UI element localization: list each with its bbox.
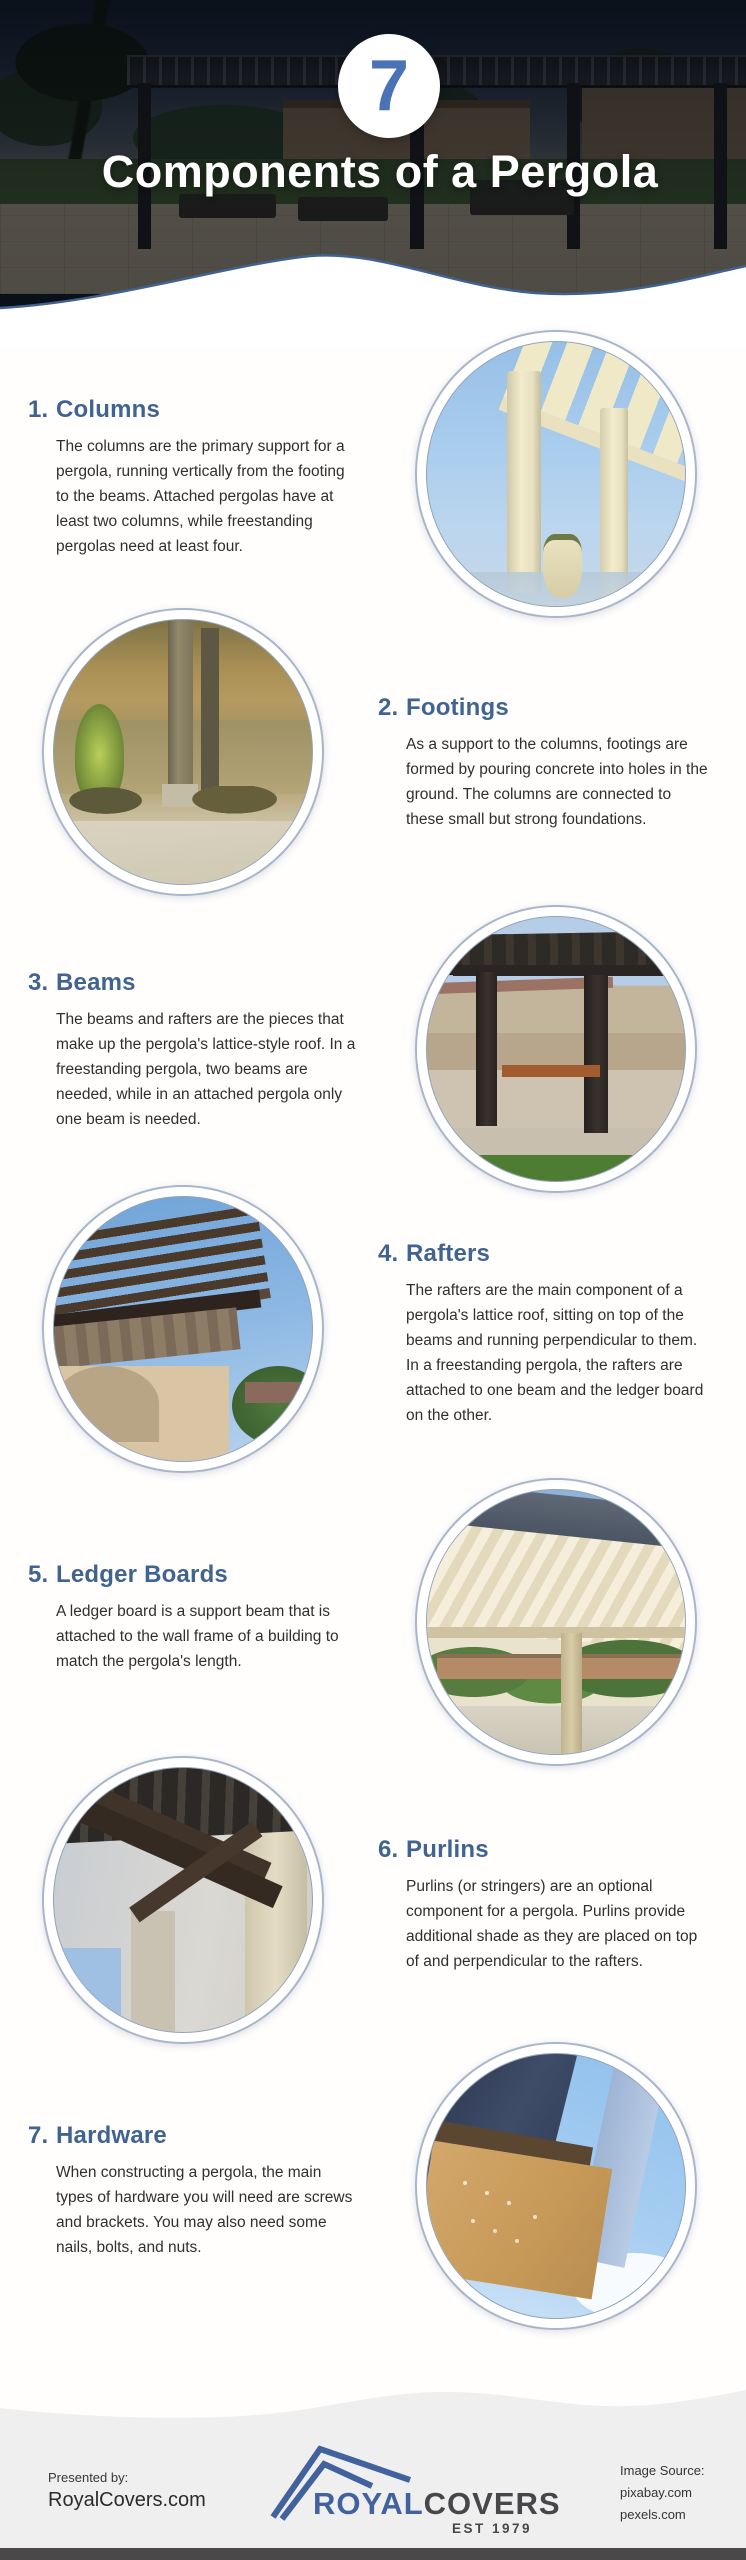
section-body: The beams and rafters are the pieces tha… xyxy=(56,1007,358,1132)
dark-pergola-picnic-table-photo xyxy=(426,916,686,1182)
bottom-bar xyxy=(0,2548,746,2560)
image-source-pixabay: pixabay.com xyxy=(620,2482,705,2504)
section-number: 2. xyxy=(378,694,406,722)
footer-wave-shape xyxy=(0,2380,746,2426)
presented-by-site[interactable]: RoyalCovers.com xyxy=(48,2489,206,2512)
pergola-lattice-roof-photo xyxy=(53,1196,313,1462)
art-layer xyxy=(600,408,628,598)
art-layer xyxy=(232,1366,313,1445)
section-body: The rafters are the main component of a … xyxy=(406,1278,708,1428)
footings-photo-circle xyxy=(42,608,324,896)
section-number: 4. xyxy=(378,1240,406,1268)
number-badge: 7 xyxy=(338,34,440,138)
art-layer xyxy=(463,2181,467,2185)
art-layer xyxy=(427,1627,685,1638)
hero-banner: 7 Components of a Pergola xyxy=(0,0,746,346)
image-source-block: Image Source: pixabay.com pexels.com xyxy=(620,2460,705,2526)
white-classical-columns-photo xyxy=(426,341,686,607)
section-title: Beams xyxy=(56,969,364,997)
art-layer xyxy=(584,975,607,1133)
section-title: Footings xyxy=(406,694,718,722)
rafters-photo-circle xyxy=(42,1185,324,1473)
royalcovers-logo-text: ROYALCOVERS xyxy=(313,2488,561,2519)
art-layer xyxy=(245,1382,312,1403)
art-layer xyxy=(131,1911,175,2032)
art-layer xyxy=(54,821,312,884)
art-layer xyxy=(201,628,219,794)
ledger-boards-photo-circle xyxy=(415,1478,697,1766)
pergola-corner-hardware-photo xyxy=(426,2053,686,2319)
section-body: As a support to the columns, footings ar… xyxy=(406,732,708,832)
section-body: The columns are the primary support for … xyxy=(56,434,358,559)
art-layer xyxy=(54,1366,159,1442)
pergola-infographic: 7 Components of a Pergola 1. Columns The… xyxy=(0,0,746,2560)
presented-by-label: Presented by: xyxy=(48,2470,206,2485)
art-layer xyxy=(502,1065,600,1077)
section-number: 3. xyxy=(28,969,56,997)
art-layer xyxy=(427,1706,685,1754)
art-layer xyxy=(561,1633,582,1754)
columns-photo-circle xyxy=(415,330,697,618)
art-layer xyxy=(168,620,194,794)
patio-cover-underside-photo xyxy=(426,1489,686,1755)
art-layer xyxy=(54,1442,100,1450)
section-body: When constructing a pergola, the main ty… xyxy=(56,2160,358,2260)
presented-by-block: Presented by: RoyalCovers.com xyxy=(48,2470,206,2512)
art-layer xyxy=(507,371,541,593)
logo-est-1979: EST 1979 xyxy=(452,2521,532,2536)
hardware-photo-circle xyxy=(415,2042,697,2330)
section-number: 1. xyxy=(28,396,56,424)
art-layer xyxy=(54,1366,229,1461)
section-title: Hardware xyxy=(56,2122,364,2150)
image-source-label: Image Source: xyxy=(620,2460,705,2482)
logo-royal: ROYAL xyxy=(313,2486,424,2521)
hero-wave-shape xyxy=(0,240,746,346)
section-number: 7. xyxy=(28,2122,56,2150)
image-source-pexels: pexels.com xyxy=(620,2504,705,2526)
section-number: 6. xyxy=(378,1836,406,1864)
art-layer xyxy=(54,786,312,815)
section-body: Purlins (or stringers) are an optional c… xyxy=(406,1874,708,1974)
beams-photo-circle xyxy=(415,905,697,1193)
art-layer xyxy=(427,1155,685,1181)
art-layer xyxy=(543,534,582,598)
section-title: Ledger Boards xyxy=(56,1561,364,1589)
purlins-photo-circle xyxy=(42,1756,324,2044)
section-title: Purlins xyxy=(406,1836,718,1864)
art-layer xyxy=(476,972,497,1125)
logo-covers: COVERS xyxy=(424,2486,561,2521)
section-title: Rafters xyxy=(406,1240,718,1268)
section-number: 5. xyxy=(28,1561,56,1589)
art-layer xyxy=(53,1948,121,2022)
lakeside-wooden-posts-photo xyxy=(53,619,313,885)
section-body: A ledger board is a support beam that is… xyxy=(56,1599,358,1674)
pergola-braces-detail-photo xyxy=(53,1767,313,2033)
badge-number: 7 xyxy=(369,50,409,122)
page-title: Components of a Pergola xyxy=(0,146,746,198)
section-title: Columns xyxy=(56,396,364,424)
art-layer xyxy=(426,2141,612,2300)
